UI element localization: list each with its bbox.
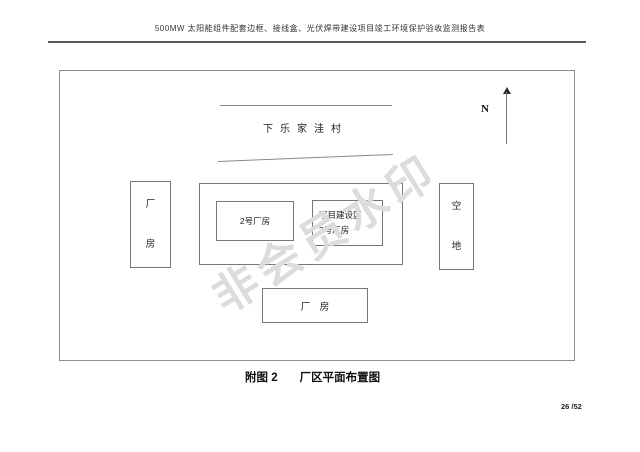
north-arrow-line xyxy=(506,92,507,144)
factory-bottom-label: 厂 房 xyxy=(301,299,330,313)
project-area-label-line1: 项目建设区 xyxy=(319,208,362,223)
report-header-title: 500MW 太阳能组件配套边框、接线盒、光伏焊带建设项目竣工环境保护验收监测报告… xyxy=(0,23,640,34)
factory-bottom-box: 厂 房 xyxy=(262,288,368,323)
factory-2-box: 2号厂房 xyxy=(216,201,294,241)
project-area-box: 项目建设区 3号厂房 xyxy=(312,200,383,246)
road-line-top xyxy=(220,105,392,106)
empty-land-label: 空地 xyxy=(451,187,461,267)
factory-2-label: 2号厂房 xyxy=(240,215,270,227)
empty-land-box: 空地 xyxy=(439,183,474,270)
factory-left-box: 厂房 xyxy=(130,181,171,268)
figure-caption-number: 附图 2 xyxy=(245,369,278,385)
figure-caption: 附图 2 厂区平面布置图 xyxy=(245,369,380,385)
figure-caption-title: 厂区平面布置图 xyxy=(300,369,381,385)
page-number: 26 /52 xyxy=(561,402,582,411)
north-label: N xyxy=(481,103,489,115)
village-label: 下乐家洼村 xyxy=(238,120,373,135)
project-area-label-line2: 3号厂房 xyxy=(319,223,349,238)
document-page: 500MW 太阳能组件配套边框、接线盒、光伏焊带建设项目竣工环境保护验收监测报告… xyxy=(0,0,640,452)
north-arrow-head-icon xyxy=(503,87,511,94)
header-divider-line xyxy=(48,41,586,43)
factory-left-label: 厂房 xyxy=(145,185,155,265)
